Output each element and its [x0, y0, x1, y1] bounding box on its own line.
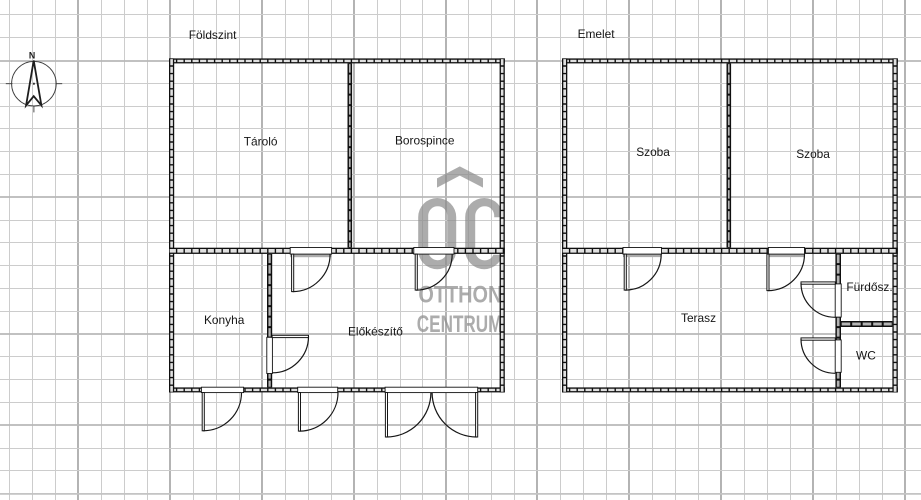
svg-text:Terasz: Terasz	[681, 311, 716, 325]
svg-text:Földszint: Földszint	[189, 28, 237, 42]
svg-text:Fürdősz.: Fürdősz.	[846, 280, 892, 294]
svg-text:Konyha: Konyha	[204, 313, 245, 327]
svg-text:Emelet: Emelet	[578, 27, 616, 41]
svg-text:WC: WC	[856, 348, 876, 362]
svg-text:Borospince: Borospince	[395, 134, 455, 148]
svg-text:OTTHON: OTTHON	[418, 282, 502, 309]
svg-text:CENTRUM: CENTRUM	[417, 311, 503, 338]
svg-text:Előkészítő: Előkészítő	[348, 324, 403, 338]
svg-text:N: N	[29, 50, 35, 60]
svg-text:Tároló: Tároló	[244, 134, 278, 148]
svg-text:Szoba: Szoba	[636, 145, 670, 159]
svg-text:Szoba: Szoba	[796, 147, 830, 161]
